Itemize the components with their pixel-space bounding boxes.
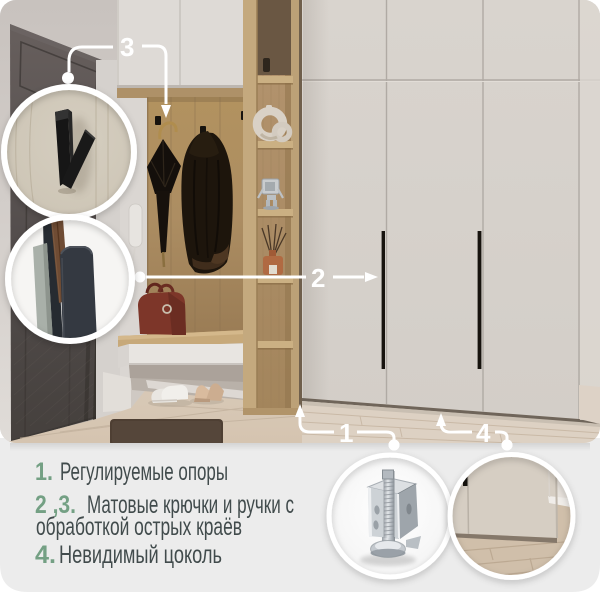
svg-text:3: 3 xyxy=(120,32,134,62)
svg-text:1: 1 xyxy=(339,418,353,448)
svg-text:1.: 1. xyxy=(35,458,53,486)
svg-text:4.: 4. xyxy=(35,541,56,569)
svg-text:4: 4 xyxy=(476,418,491,448)
svg-text:2: 2 xyxy=(311,263,325,293)
svg-text:обработкой острых краёв: обработкой острых краёв xyxy=(36,513,242,541)
svg-text:Регулируемые опоры: Регулируемые опоры xyxy=(60,458,228,486)
svg-text:Невидимый цоколь: Невидимый цоколь xyxy=(59,541,222,569)
